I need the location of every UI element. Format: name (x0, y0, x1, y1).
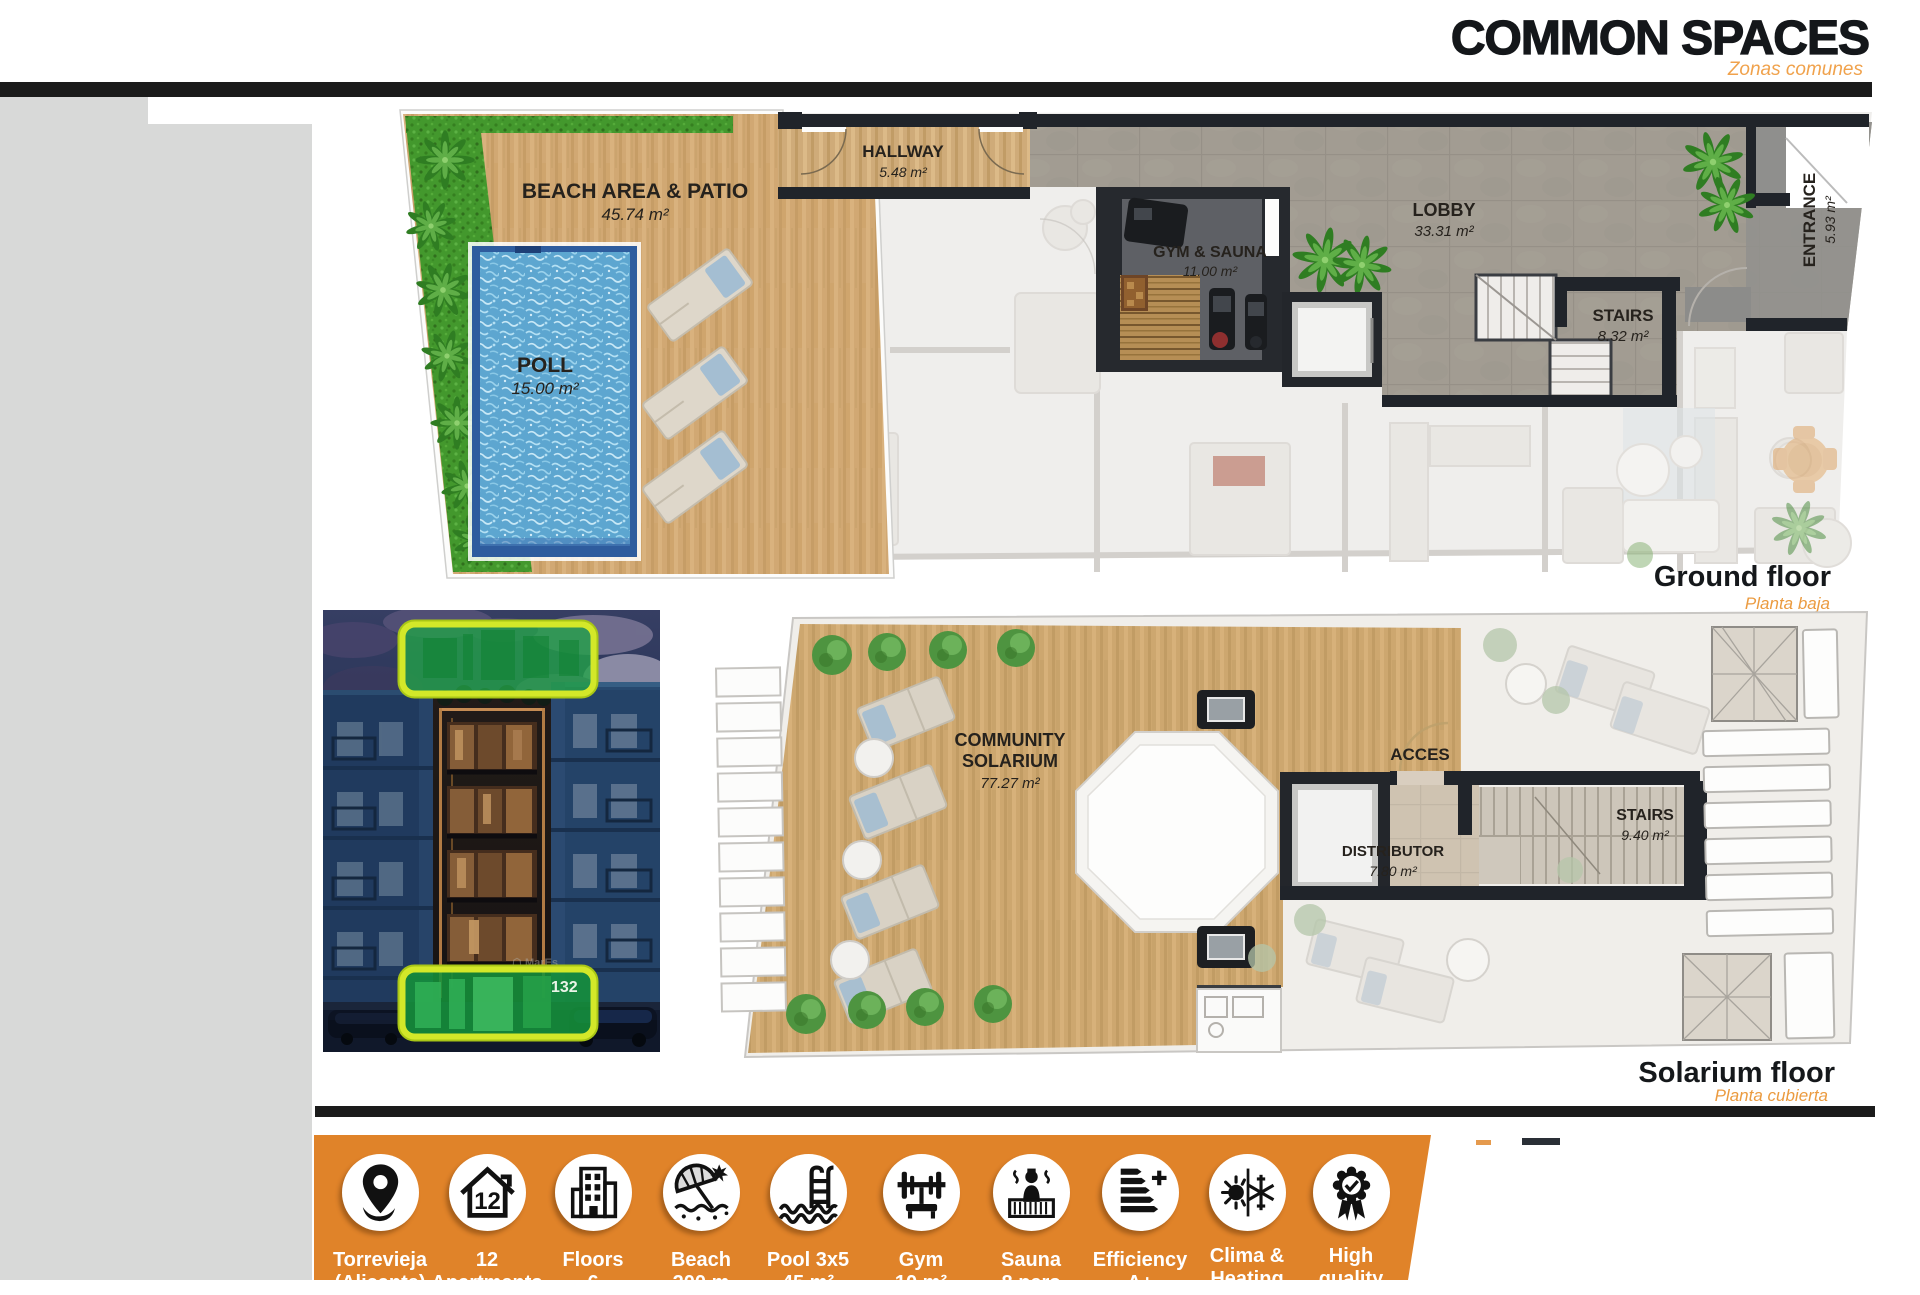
svg-text:ENTRANCE: ENTRANCE (1800, 173, 1819, 267)
svg-text:12: 12 (474, 1188, 501, 1215)
svg-text:ACCES: ACCES (1390, 745, 1450, 764)
svg-text:33.31 m²: 33.31 m² (1414, 223, 1474, 240)
svg-text:STAIRS: STAIRS (1616, 807, 1674, 824)
svg-text:15.00 m²: 15.00 m² (511, 379, 579, 398)
svg-text:STAIRS: STAIRS (1592, 306, 1653, 325)
svg-text:45.74 m²: 45.74 m² (601, 205, 669, 224)
svg-text:8.32 m²: 8.32 m² (1598, 328, 1650, 345)
svg-text:HALLWAY: HALLWAY (862, 142, 944, 161)
svg-text:7.80 m²: 7.80 m² (1369, 863, 1418, 879)
svg-text:LOBBY: LOBBY (1413, 200, 1476, 220)
svg-text:9.40 m²: 9.40 m² (1621, 827, 1670, 843)
svg-text:77.27 m²: 77.27 m² (980, 775, 1040, 792)
svg-text:SOLARIUM: SOLARIUM (962, 751, 1058, 771)
svg-text:5.48 m²: 5.48 m² (879, 164, 928, 180)
svg-text:11.00 m²: 11.00 m² (1183, 263, 1239, 279)
svg-text:132: 132 (551, 979, 578, 996)
svg-text:BEACH AREA & PATIO: BEACH AREA & PATIO (522, 180, 748, 203)
svg-text:COMMUNITY: COMMUNITY (955, 730, 1066, 750)
svg-text:DISTRIBUTOR: DISTRIBUTOR (1342, 843, 1444, 860)
svg-text:GYM & SAUNA: GYM & SAUNA (1153, 244, 1267, 261)
svg-text:POLL: POLL (517, 354, 573, 377)
svg-text:5.93 m²: 5.93 m² (1822, 195, 1838, 244)
